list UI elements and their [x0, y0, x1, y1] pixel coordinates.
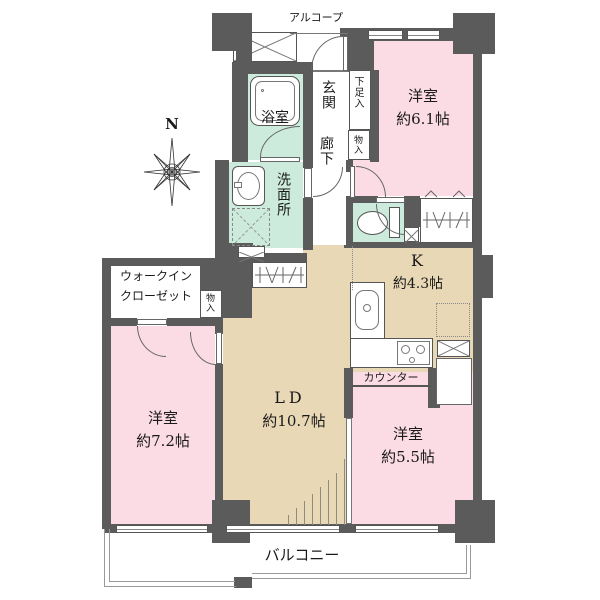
- kitchen-name: K: [402, 252, 432, 270]
- wall: [352, 196, 378, 203]
- washroom-label: 洗面所: [276, 172, 290, 217]
- kitchen-size: 約4.3帖: [382, 276, 454, 292]
- cross-icon: [239, 252, 264, 262]
- hanger-rod-icon: [253, 263, 306, 287]
- column: [212, 500, 250, 543]
- balcony-line: [104, 586, 236, 587]
- bedroom-recess: [436, 358, 472, 405]
- floor-plan: N アルコープ 洋室 約6.1帖 K 約4.3帖 LD 約10.7帖 洋室 約7…: [0, 0, 600, 600]
- closet: [420, 198, 473, 243]
- shaft-box: [238, 246, 265, 258]
- column: [455, 500, 495, 543]
- balcony-line: [252, 578, 470, 579]
- kitchen-sink-unit: [350, 282, 385, 339]
- room2-size: 約7.2帖: [125, 433, 201, 450]
- alcove-label: アルコープ: [286, 12, 346, 25]
- wall: [215, 160, 229, 244]
- counter-line: [352, 385, 430, 387]
- alcove-line: [290, 33, 348, 34]
- hall-storage-label: 物入: [352, 135, 361, 155]
- room1-name: 洋室: [393, 88, 453, 105]
- balcony-line: [470, 545, 471, 579]
- balcony-line: [104, 529, 105, 587]
- kitchen-boundary-line: [352, 246, 353, 290]
- folding-door-icon: [452, 190, 466, 198]
- wall: [303, 160, 313, 168]
- toilet-door-leaf: [376, 197, 405, 203]
- refrigerator-space: [436, 303, 470, 337]
- wall: [212, 13, 252, 51]
- wall: [102, 258, 111, 529]
- hanger-rod-icon: [421, 199, 472, 242]
- room3-name: 洋室: [378, 426, 438, 443]
- balcony-step: [234, 577, 252, 588]
- balcony-line: [466, 545, 467, 574]
- wall: [200, 266, 222, 290]
- corridor-label: 廊下: [319, 136, 333, 166]
- shaft-box: [404, 227, 419, 242]
- balcony-label: バルコニー: [250, 547, 354, 564]
- window: [355, 525, 439, 533]
- counter-label: カウンター: [353, 372, 429, 385]
- wic-door-leaf: [137, 319, 167, 325]
- entrance-label: 玄関: [321, 80, 335, 110]
- wall: [404, 196, 420, 227]
- wall: [110, 318, 137, 326]
- closet: [252, 262, 307, 288]
- window: [226, 525, 340, 533]
- wall: [167, 318, 223, 326]
- partition-stack-lines: [288, 455, 350, 525]
- wall: [247, 62, 303, 74]
- balcony-line: [252, 573, 466, 574]
- wall: [303, 62, 313, 160]
- wall: [345, 196, 353, 246]
- ld-name: LD: [263, 389, 317, 407]
- stove-icon: [397, 341, 430, 365]
- room3-size: 約5.5帖: [370, 449, 446, 466]
- wall: [102, 258, 222, 266]
- room2-name: 洋室: [133, 410, 193, 427]
- washbasin-icon: [232, 166, 265, 206]
- folding-door-icon: [424, 190, 438, 198]
- washroom-door-leaf: [304, 168, 312, 198]
- window: [407, 30, 440, 40]
- wall: [222, 258, 252, 318]
- shaft-box: [437, 340, 470, 357]
- wic-label-line2: クローゼット: [113, 290, 199, 304]
- bedroom2-door-leaf: [216, 332, 222, 364]
- shoe-cabinet-label: 下足入: [352, 76, 362, 109]
- cross-icon: [233, 209, 269, 245]
- cross-icon: [438, 341, 469, 356]
- balcony-line: [109, 529, 110, 582]
- wall: [370, 70, 379, 162]
- entrance-door-leaf: [343, 36, 348, 71]
- living-dining-fill-nw: [252, 288, 303, 318]
- washer-space: [232, 208, 270, 246]
- kitchen-counter-unit: [350, 338, 433, 368]
- compass-north-label: N: [162, 116, 182, 133]
- balcony-line: [109, 581, 235, 582]
- bedroom1-door-leaf: [350, 166, 355, 198]
- ld-size: 約10.7帖: [250, 413, 338, 430]
- corner-column: [453, 13, 495, 54]
- window: [368, 30, 403, 40]
- wall: [344, 368, 353, 418]
- wic-storage-label: 物入: [204, 293, 213, 313]
- bathroom-door-leaf: [260, 157, 300, 162]
- wic-label-line1: ウォークイン: [113, 270, 199, 284]
- wall: [232, 62, 248, 162]
- cross-icon: [405, 230, 418, 243]
- wall: [303, 198, 313, 250]
- room1-size: 約6.1帖: [385, 111, 461, 128]
- window: [116, 525, 208, 533]
- compass-icon: [140, 134, 204, 210]
- wall: [481, 255, 493, 298]
- bathroom-label: 浴室: [248, 110, 302, 126]
